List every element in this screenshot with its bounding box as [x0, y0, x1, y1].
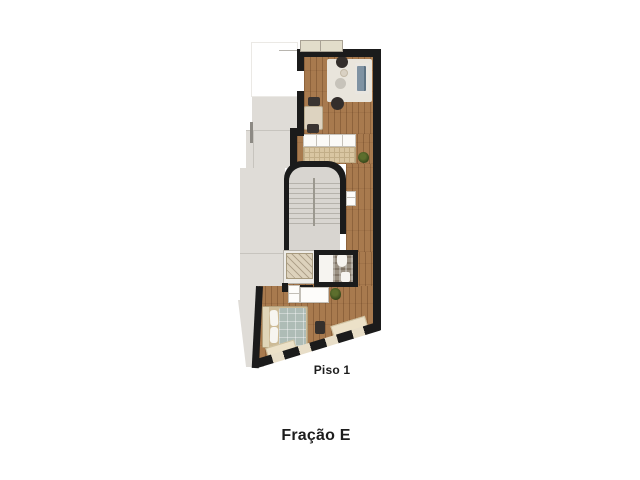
plant-hall-icon: [330, 288, 341, 300]
common-area-wall-line-2: [240, 253, 285, 254]
stair-handrail: [313, 178, 315, 226]
bed-pillow-1: [270, 310, 279, 326]
stairwell: [289, 167, 340, 252]
bathroom-sink-icon: [341, 272, 350, 282]
wall-living-left: [297, 49, 304, 134]
unit-label: Fração E: [256, 427, 376, 445]
floor-plan-canvas: Piso 1 Fração E: [0, 0, 640, 480]
common-area-door-mark: [250, 122, 253, 143]
boundary-line: [279, 50, 298, 51]
balcony-divider: [320, 41, 321, 51]
hall-cabinet-squares: [288, 285, 300, 303]
shower-box: [286, 253, 313, 279]
bedroom-chair-icon: [315, 321, 325, 334]
bed-pillow-2: [270, 327, 279, 343]
hall-cabinet-wide: [300, 287, 329, 303]
door-gap-living: [297, 71, 304, 91]
dining-chair-bottom: [307, 124, 319, 133]
coffee-table-round: [335, 78, 346, 89]
pouf-top: [336, 56, 348, 68]
corridor-cupboard: [346, 191, 356, 206]
sofa-cushion: [357, 66, 366, 91]
side-table-small: [340, 69, 348, 77]
toilet-icon: [337, 255, 347, 267]
dining-chair-top: [308, 97, 320, 106]
kitchen-cabinets: [303, 134, 356, 147]
bed-headboard: [263, 307, 269, 347]
common-area-wall-line-vertical: [253, 131, 254, 168]
plant-corridor-icon: [358, 152, 369, 163]
wall-kitchen-left: [290, 134, 297, 168]
corridor-floor: [346, 164, 374, 252]
pouf-bottom: [331, 97, 344, 110]
floor-label: Piso 1: [302, 363, 362, 377]
balcony-box: [300, 40, 343, 52]
stair-door-gap: [340, 234, 346, 250]
wall-right: [373, 49, 381, 330]
bathroom-floor-white: [319, 255, 333, 282]
